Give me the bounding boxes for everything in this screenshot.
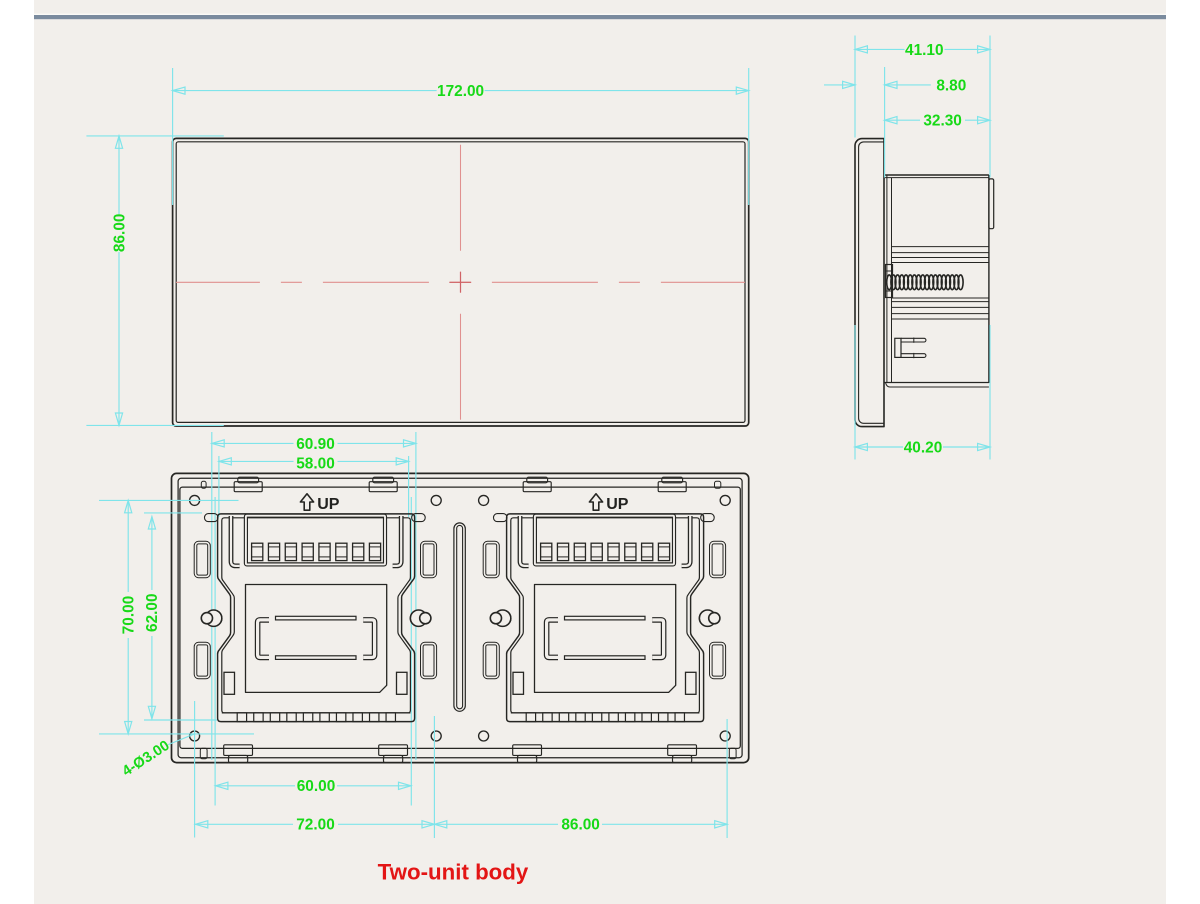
svg-text:UP: UP [317, 496, 340, 513]
svg-text:62.00: 62.00 [144, 593, 161, 632]
svg-text:58.00: 58.00 [296, 455, 335, 472]
svg-text:172.00: 172.00 [437, 83, 484, 100]
svg-text:40.20: 40.20 [904, 439, 943, 456]
svg-text:86.00: 86.00 [112, 214, 129, 253]
svg-text:72.00: 72.00 [296, 817, 335, 834]
svg-text:60.00: 60.00 [297, 778, 336, 795]
svg-text:Two-unit body: Two-unit body [378, 859, 529, 884]
svg-text:86.00: 86.00 [561, 817, 600, 834]
svg-text:8.80: 8.80 [936, 77, 966, 94]
svg-text:70.00: 70.00 [120, 596, 137, 635]
svg-text:32.30: 32.30 [923, 113, 962, 130]
svg-text:60.90: 60.90 [296, 436, 335, 453]
svg-text:41.10: 41.10 [905, 42, 944, 59]
